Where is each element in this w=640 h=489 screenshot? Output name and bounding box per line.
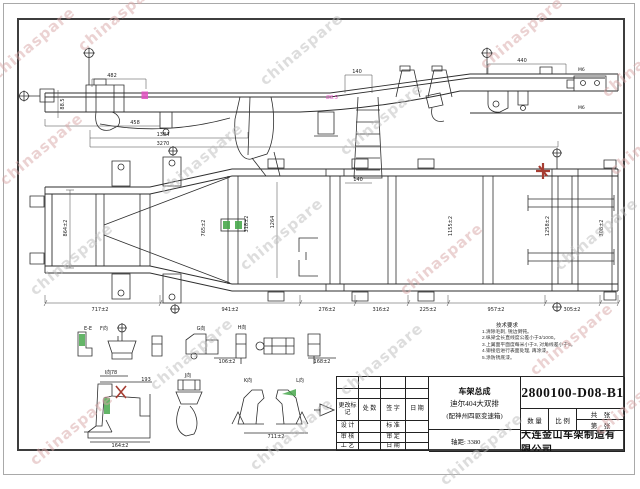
dim-label: 276±2 (319, 307, 336, 313)
sheet-number-label: 第 张 (577, 420, 625, 431)
dim-label: 1264 (270, 216, 276, 229)
designer-label: 设 计 (337, 421, 359, 433)
rev-empty-cell (406, 433, 429, 443)
plan-rail-lines (45, 169, 618, 291)
scale-label: 比 例 (549, 409, 577, 431)
rev-empty-cell (381, 377, 406, 389)
checker-label: 审 核 (337, 433, 359, 443)
detail-row2-sketches (84, 376, 308, 442)
dim-label: 864±2 (63, 220, 69, 237)
detail-view-label: L向 (296, 377, 304, 384)
datum-target-icon (117, 323, 127, 341)
dim-label: 78 (111, 370, 117, 376)
dim-label: 1155±2 (448, 216, 454, 236)
dim-label: 305±2 (564, 307, 581, 313)
dim-label: 225±2 (420, 307, 437, 313)
dim-label: 88.5 (60, 98, 66, 109)
magenta-highlight-mark (142, 92, 149, 100)
red-highlighted-bracket (536, 163, 550, 179)
detail-view-label: F向 (100, 325, 108, 332)
product-name-cell: 车架总成 迪尔404大双排 (配神州四驱变速箱) (429, 377, 521, 430)
datum-target-icon (168, 146, 562, 314)
green-highlight-detail (79, 334, 85, 346)
projection-symbol-icon (314, 404, 334, 416)
dim-label: 440 (517, 58, 527, 64)
dim-label: 717±2 (92, 307, 109, 313)
total-sheets-label: 共 张 (577, 409, 625, 420)
rev-empty-cell (359, 433, 381, 443)
wheelbase-cell: 轴距: 3380 (429, 430, 521, 452)
detail-view-label: J向 (184, 372, 191, 379)
detail-view-label: K向 (244, 377, 252, 384)
rev-count-header: 处 数 (359, 399, 381, 421)
thread-label: M6 (578, 105, 585, 111)
dim-label: 765±2 (201, 220, 207, 237)
detail-view-label: H向 (238, 324, 247, 331)
quantity-label: 数 量 (521, 409, 549, 431)
detail-row1-sketches (78, 332, 336, 364)
dim-label: 3270 (157, 141, 170, 147)
dim-label: 308±2 (599, 220, 605, 237)
rev-sign-header: 签 字 (381, 399, 406, 421)
plan-view-drawing: 864±2 765±2 318±2 1264 1155±2 1258±2 308… (30, 146, 620, 314)
dim-label: 168±2 (314, 359, 331, 365)
dim-label: 1384 (157, 132, 170, 138)
rev-empty-cell (337, 377, 359, 389)
rev-empty-cell (406, 377, 429, 389)
detail-view-label: G向 (197, 325, 206, 332)
dim-label: 193 (141, 377, 151, 383)
rev-empty-cell (359, 443, 381, 451)
green-highlighted-bracket (221, 219, 245, 231)
dim-label: 164±2 (112, 443, 129, 449)
blueprint-page: { "watermark": { "text": "chinaspare" },… (0, 0, 640, 480)
technical-requirements: 技术要求 1.清除毛刺, 锐边倒钝。 2.纵梁全长直线度公差小于3/1000。 … (482, 321, 624, 362)
rev-empty-cell (337, 389, 359, 399)
dim-label: 711±2 (268, 434, 285, 440)
date-label: 日 期 (381, 443, 406, 451)
dim-label: 318±2 (244, 216, 250, 233)
technical-requirements-heading: 技术要求 (496, 321, 624, 329)
approver-label: 审 定 (381, 433, 406, 443)
dim-label: 957±2 (488, 307, 505, 313)
green-highlight-detail (104, 398, 110, 414)
side-view-drawing: Ø8.5 482 140 440 458 88.5 1384 3270 M6 M… (18, 48, 622, 179)
standard-label: 标 准 (381, 421, 406, 433)
thread-label: M6 (578, 67, 585, 73)
dim-label: 316±2 (373, 307, 390, 313)
product-name-line3: (配神州四驱变速箱) (446, 410, 502, 420)
red-cross-mark (116, 386, 126, 398)
dim-label: 1258±2 (545, 216, 551, 236)
technical-note-line: 5.涂防锈底漆。 (482, 356, 624, 362)
dim-label: 482 (107, 73, 117, 79)
rev-empty-cell (406, 389, 429, 399)
product-name-line1: 车架总成 (459, 386, 491, 397)
plan-hanger-lines (30, 157, 434, 303)
detail-views: E-E F向 G向 H向 I向 J向 K向 L向 78 193 164±2 71… (78, 323, 336, 449)
rev-empty-cell (359, 421, 381, 433)
magenta-note-label: Ø8.5 (326, 94, 338, 101)
rev-empty-cell (359, 377, 381, 389)
side-rail-lines (45, 74, 622, 113)
rev-date-header: 日 期 (406, 399, 429, 421)
dim-label: 140 (353, 177, 363, 183)
title-block: 更改标记 处 数 签 字 日 期 设 计 标 准 审 核 审 定 工 艺 日 期… (336, 376, 624, 451)
process-label: 工 艺 (337, 443, 359, 451)
dim-label: 458 (130, 120, 140, 126)
dim-label: 941±2 (222, 307, 239, 313)
dim-label: 106±2 (219, 359, 236, 365)
rev-empty-cell (359, 389, 381, 399)
detail-view-label: E-E (84, 326, 92, 332)
drawing-number: 2800100-D08-B1 (521, 377, 625, 409)
rev-empty-cell (406, 443, 429, 451)
rev-empty-cell (381, 389, 406, 399)
rev-mark-header: 更改标记 (337, 399, 359, 421)
product-name-line2: 迪尔404大双排 (450, 398, 499, 409)
rev-empty-cell (406, 421, 429, 433)
dim-label: 140 (352, 69, 362, 75)
company-name: 大连金山车架制造有限公司 (521, 431, 625, 452)
